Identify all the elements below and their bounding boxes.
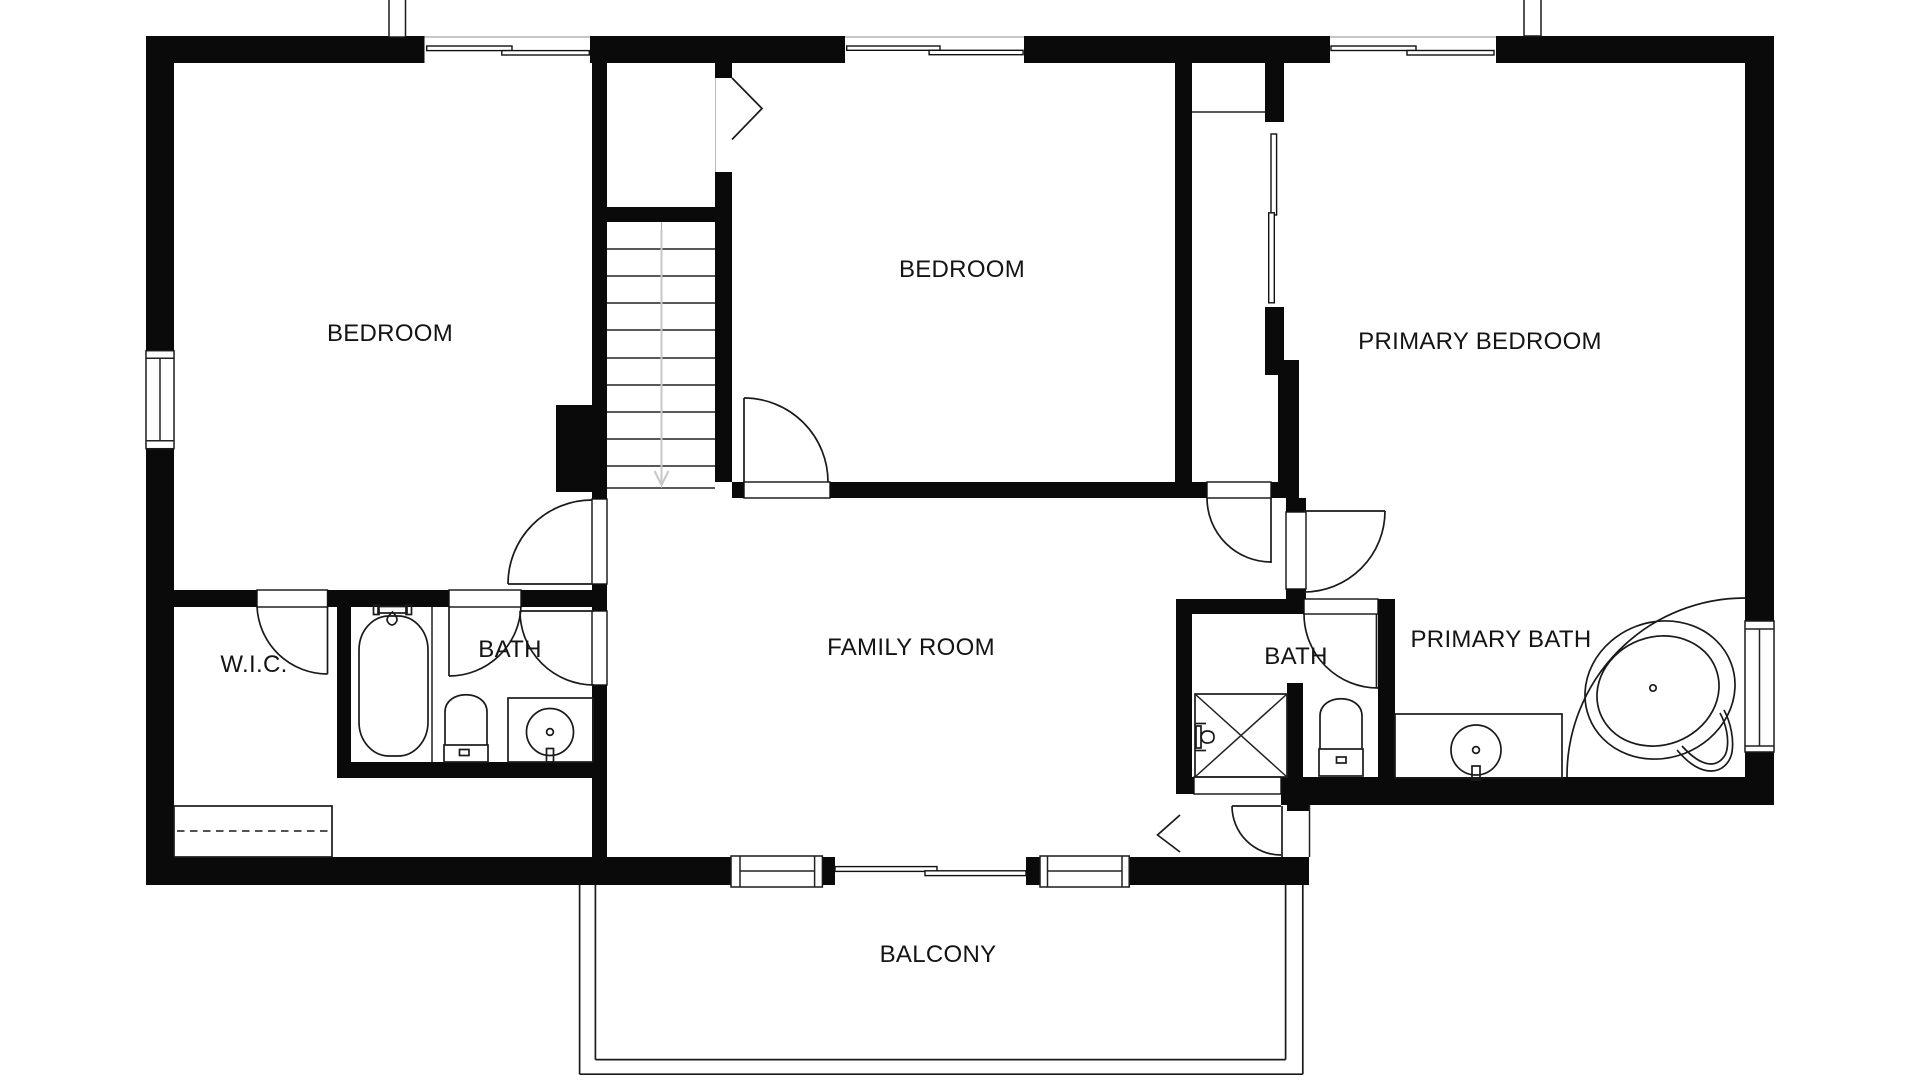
svg-text:PRIMARY BATH: PRIMARY BATH [1411, 626, 1592, 653]
svg-text:W.I.C.: W.I.C. [220, 651, 287, 678]
svg-text:FAMILY ROOM: FAMILY ROOM [827, 634, 995, 661]
svg-text:PRIMARY BEDROOM: PRIMARY BEDROOM [1358, 328, 1602, 355]
svg-text:BEDROOM: BEDROOM [327, 320, 453, 347]
svg-text:BALCONY: BALCONY [880, 941, 997, 968]
svg-text:BATH: BATH [1264, 643, 1327, 670]
svg-text:BEDROOM: BEDROOM [899, 256, 1025, 283]
svg-text:BATH: BATH [478, 636, 541, 663]
